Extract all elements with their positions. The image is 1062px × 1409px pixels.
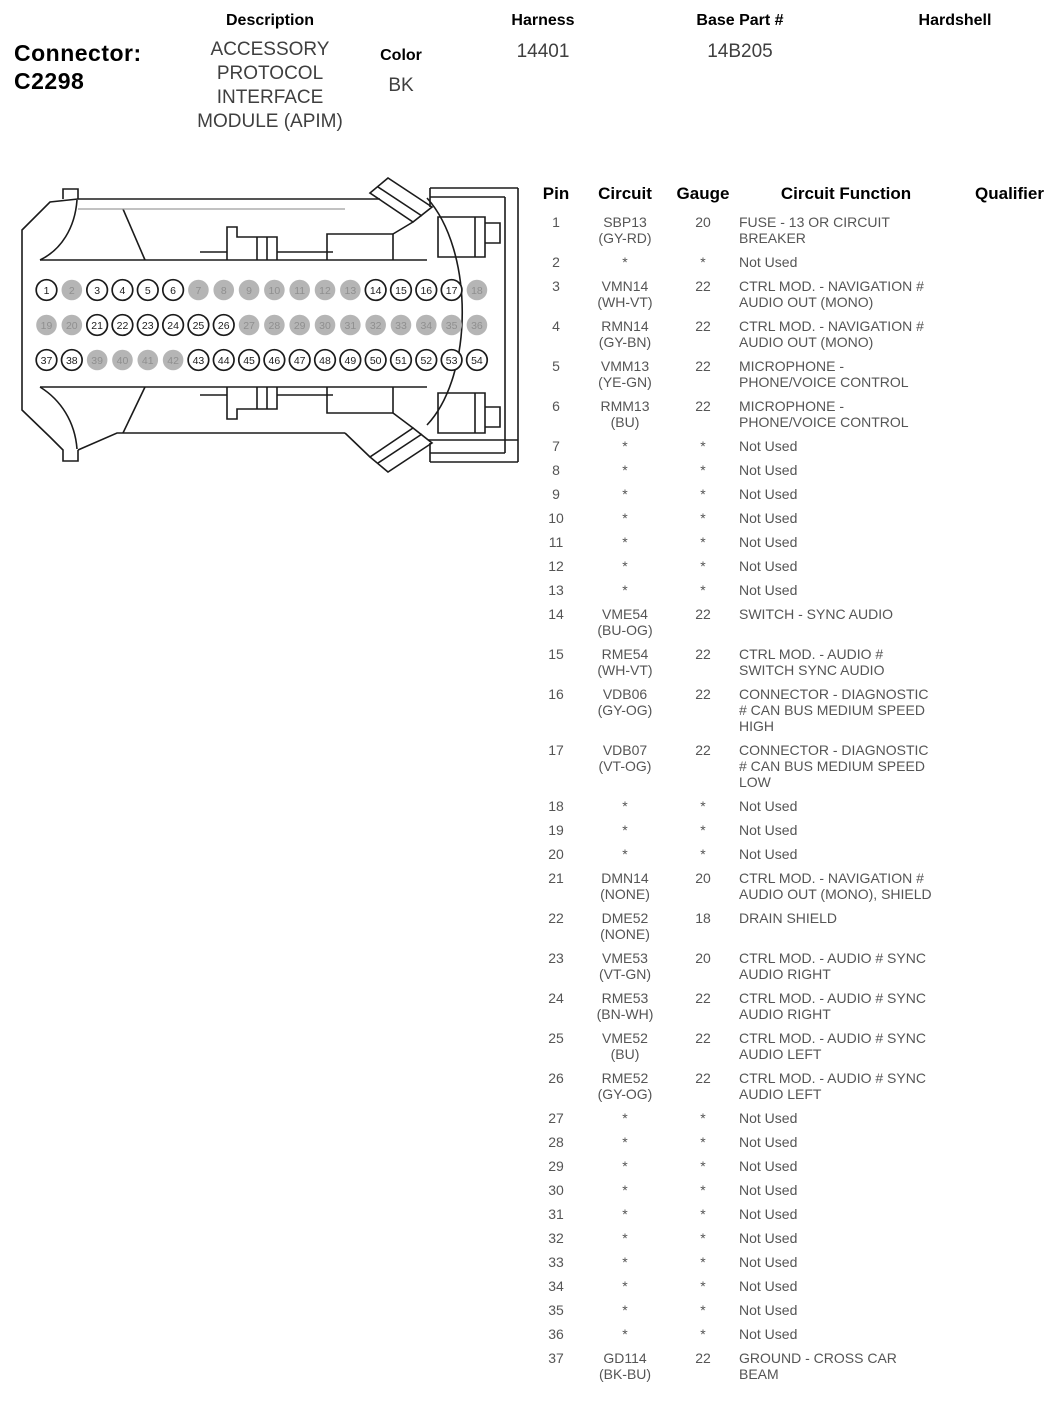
table-row: 4 RMN14 (GY-BN) 22 CTRL MOD. - NAVIGATIO… — [533, 318, 1062, 350]
connector-pin-number-10: 10 — [269, 285, 281, 297]
cell-pin: 2 — [533, 254, 579, 270]
table-row: 17 VDB07 (VT-OG) 22 CONNECTOR - DIAGNOST… — [533, 742, 1062, 790]
circuit-code: * — [579, 822, 671, 838]
cell-circuit-function: DRAIN SHIELD — [735, 910, 957, 942]
circuit-code: * — [579, 1158, 671, 1174]
connector-pin-number-8: 8 — [221, 285, 227, 297]
cell-circuit: * — [579, 254, 671, 270]
cell-circuit: * — [579, 1206, 671, 1222]
connector-pin-number-48: 48 — [319, 355, 331, 367]
cell-circuit-function: Not Used — [735, 438, 957, 454]
cell-circuit: * — [579, 462, 671, 478]
connector-pin-number-29: 29 — [294, 320, 306, 332]
cell-circuit-function: FUSE - 13 OR CIRCUIT BREAKER — [735, 214, 957, 246]
connector-pin-number-24: 24 — [167, 320, 179, 332]
col-header-qualifier: Qualifier — [957, 184, 1062, 204]
cell-gauge: * — [671, 438, 735, 454]
cell-qualifier — [957, 438, 1062, 454]
connector-pin-number-11: 11 — [294, 285, 305, 297]
cell-pin: 36 — [533, 1326, 579, 1342]
cell-gauge: * — [671, 1110, 735, 1126]
cell-gauge: * — [671, 1302, 735, 1318]
circuit-code: VDB06 — [579, 686, 671, 702]
cell-circuit-function: CTRL MOD. - NAVIGATION # AUDIO OUT (MONO… — [735, 870, 957, 902]
connector-pin-number-13: 13 — [344, 285, 356, 297]
connector-pin-number-12: 12 — [319, 285, 331, 297]
cell-gauge: 22 — [671, 606, 735, 638]
connector-pin-number-16: 16 — [420, 285, 432, 297]
cell-qualifier — [957, 1278, 1062, 1294]
cell-pin: 10 — [533, 510, 579, 526]
table-row: 9 * * Not Used — [533, 486, 1062, 502]
cell-qualifier — [957, 558, 1062, 574]
table-row: 29 * * Not Used — [533, 1158, 1062, 1174]
cell-circuit: * — [579, 558, 671, 574]
cell-qualifier — [957, 358, 1062, 390]
connector-pin-number-22: 22 — [117, 320, 129, 332]
cell-qualifier — [957, 1326, 1062, 1342]
cell-qualifier — [957, 1206, 1062, 1222]
cell-pin: 9 — [533, 486, 579, 502]
cell-gauge: 22 — [671, 742, 735, 790]
cell-circuit-function: Not Used — [735, 1182, 957, 1198]
circuit-wire-color: (BU-OG) — [579, 622, 671, 638]
connector-pin-number-54: 54 — [471, 355, 483, 367]
table-row: 18 * * Not Used — [533, 798, 1062, 814]
cell-qualifier — [957, 398, 1062, 430]
cell-pin: 30 — [533, 1182, 579, 1198]
connector-label: Connector: — [14, 40, 142, 67]
table-row: 32 * * Not Used — [533, 1230, 1062, 1246]
cell-circuit-function: Not Used — [735, 254, 957, 270]
table-row: 5 VMM13 (YE-GN) 22 MICROPHONE - PHONE/VO… — [533, 358, 1062, 390]
description-value: ACCESSORY PROTOCOL INTERFACE MODULE (API… — [178, 38, 362, 134]
cell-circuit-function: CTRL MOD. - AUDIO # SYNC AUDIO RIGHT — [735, 990, 957, 1022]
cell-qualifier — [957, 1134, 1062, 1150]
cell-gauge: 22 — [671, 278, 735, 310]
circuit-code: * — [579, 1230, 671, 1246]
connector-pin-number-30: 30 — [319, 320, 331, 332]
table-row: 7 * * Not Used — [533, 438, 1062, 454]
cell-pin: 19 — [533, 822, 579, 838]
connector-pin-number-43: 43 — [193, 355, 205, 367]
circuit-code: * — [579, 846, 671, 862]
circuit-wire-color: (GY-RD) — [579, 230, 671, 246]
circuit-code: * — [579, 486, 671, 502]
table-row: 12 * * Not Used — [533, 558, 1062, 574]
cell-qualifier — [957, 1070, 1062, 1102]
cell-qualifier — [957, 846, 1062, 862]
base-part-column-header: Base Part # — [672, 12, 808, 30]
cell-circuit: VME52 (BU) — [579, 1030, 671, 1062]
connector-pin-number-4: 4 — [120, 285, 126, 297]
connector-pin-number-14: 14 — [370, 285, 382, 297]
cell-gauge: 22 — [671, 646, 735, 678]
connector-pin-number-27: 27 — [243, 320, 255, 332]
cell-gauge: * — [671, 1230, 735, 1246]
circuit-wire-color: (BN-WH) — [579, 1006, 671, 1022]
cell-qualifier — [957, 1302, 1062, 1318]
cell-circuit: * — [579, 510, 671, 526]
connector-pin-number-50: 50 — [370, 355, 382, 367]
cell-circuit-function: CONNECTOR - DIAGNOSTIC # CAN BUS MEDIUM … — [735, 686, 957, 734]
cell-qualifier — [957, 1350, 1062, 1382]
cell-qualifier — [957, 910, 1062, 942]
circuit-wire-color: (YE-GN) — [579, 374, 671, 390]
table-row: 15 RME54 (WH-VT) 22 CTRL MOD. - AUDIO # … — [533, 646, 1062, 678]
table-row: 26 RME52 (GY-OG) 22 CTRL MOD. - AUDIO # … — [533, 1070, 1062, 1102]
circuit-code: * — [579, 1254, 671, 1270]
cell-circuit-function: Not Used — [735, 798, 957, 814]
circuit-wire-color: (BU) — [579, 414, 671, 430]
cell-circuit-function: Not Used — [735, 822, 957, 838]
circuit-code: * — [579, 1206, 671, 1222]
connector-pin-number-37: 37 — [41, 355, 53, 367]
circuit-code: * — [579, 1134, 671, 1150]
cell-gauge: 22 — [671, 686, 735, 734]
circuit-code: SBP13 — [579, 214, 671, 230]
table-row: 21 DMN14 (NONE) 20 CTRL MOD. - NAVIGATIO… — [533, 870, 1062, 902]
connector-pin-grid: 1234567891011121314151617181920212223242… — [36, 280, 487, 371]
cell-qualifier — [957, 254, 1062, 270]
base-part-value: 14B205 — [672, 40, 808, 64]
cell-pin: 21 — [533, 870, 579, 902]
connector-pin-number-42: 42 — [167, 355, 179, 367]
cell-gauge: * — [671, 486, 735, 502]
connector-pin-number-46: 46 — [269, 355, 281, 367]
cell-gauge: * — [671, 1134, 735, 1150]
cell-pin: 11 — [533, 534, 579, 550]
cell-pin: 13 — [533, 582, 579, 598]
cell-pin: 8 — [533, 462, 579, 478]
cell-pin: 5 — [533, 358, 579, 390]
circuit-code: * — [579, 1326, 671, 1342]
cell-gauge: * — [671, 1206, 735, 1222]
connector-pin-number-53: 53 — [446, 355, 458, 367]
connector-pin-number-41: 41 — [142, 355, 154, 367]
cell-gauge: * — [671, 846, 735, 862]
connector-id: C2298 — [14, 68, 84, 95]
circuit-code: VME53 — [579, 950, 671, 966]
cell-qualifier — [957, 1110, 1062, 1126]
cell-qualifier — [957, 686, 1062, 734]
connector-pin-number-1: 1 — [44, 285, 50, 297]
cell-qualifier — [957, 278, 1062, 310]
connector-pin-number-31: 31 — [344, 320, 356, 332]
cell-circuit: VME54 (BU-OG) — [579, 606, 671, 638]
cell-circuit-function: Not Used — [735, 1230, 957, 1246]
connector-pin-number-26: 26 — [218, 320, 230, 332]
circuit-code: DME52 — [579, 910, 671, 926]
pinout-table-body: 1 SBP13 (GY-RD) 20 FUSE - 13 OR CIRCUIT … — [533, 214, 1062, 1382]
cell-qualifier — [957, 646, 1062, 678]
circuit-code: VDB07 — [579, 742, 671, 758]
cell-gauge: 22 — [671, 398, 735, 430]
cell-circuit: VMM13 (YE-GN) — [579, 358, 671, 390]
cell-circuit: * — [579, 1302, 671, 1318]
cell-circuit-function: Not Used — [735, 582, 957, 598]
cell-circuit: VDB06 (GY-OG) — [579, 686, 671, 734]
cell-circuit-function: SWITCH - SYNC AUDIO — [735, 606, 957, 638]
cell-gauge: * — [671, 254, 735, 270]
circuit-wire-color: (VT-GN) — [579, 966, 671, 982]
cell-circuit-function: CONNECTOR - DIAGNOSTIC # CAN BUS MEDIUM … — [735, 742, 957, 790]
cell-circuit: * — [579, 1278, 671, 1294]
cell-qualifier — [957, 990, 1062, 1022]
connector-pin-number-36: 36 — [471, 320, 483, 332]
cell-gauge: 20 — [671, 950, 735, 982]
table-row: 34 * * Not Used — [533, 1278, 1062, 1294]
circuit-code: * — [579, 1182, 671, 1198]
cell-circuit: DME52 (NONE) — [579, 910, 671, 942]
circuit-code: * — [579, 582, 671, 598]
cell-circuit: * — [579, 582, 671, 598]
cell-qualifier — [957, 318, 1062, 350]
cell-gauge: * — [671, 1326, 735, 1342]
circuit-code: * — [579, 254, 671, 270]
cell-circuit: RMN14 (GY-BN) — [579, 318, 671, 350]
cell-circuit: RME54 (WH-VT) — [579, 646, 671, 678]
cell-circuit-function: CTRL MOD. - NAVIGATION # AUDIO OUT (MONO… — [735, 278, 957, 310]
cell-circuit: * — [579, 1326, 671, 1342]
circuit-code: * — [579, 438, 671, 454]
cell-gauge: 22 — [671, 318, 735, 350]
circuit-code: * — [579, 1302, 671, 1318]
connector-pin-number-7: 7 — [195, 285, 201, 297]
cell-circuit-function: Not Used — [735, 462, 957, 478]
cell-qualifier — [957, 870, 1062, 902]
circuit-code: RMM13 — [579, 398, 671, 414]
table-row: 31 * * Not Used — [533, 1206, 1062, 1222]
connector-pin-number-35: 35 — [446, 320, 458, 332]
cell-qualifier — [957, 1254, 1062, 1270]
cell-qualifier — [957, 1182, 1062, 1198]
cell-gauge: 20 — [671, 870, 735, 902]
circuit-wire-color: (WH-VT) — [579, 294, 671, 310]
cell-circuit-function: Not Used — [735, 510, 957, 526]
cell-gauge: * — [671, 1158, 735, 1174]
circuit-wire-color: (GY-OG) — [579, 702, 671, 718]
cell-pin: 28 — [533, 1134, 579, 1150]
table-row: 20 * * Not Used — [533, 846, 1062, 862]
harness-column-header: Harness — [493, 12, 593, 30]
cell-circuit: * — [579, 438, 671, 454]
connector-pin-number-38: 38 — [66, 355, 78, 367]
cell-circuit: * — [579, 534, 671, 550]
cell-pin: 24 — [533, 990, 579, 1022]
cell-pin: 15 — [533, 646, 579, 678]
circuit-wire-color: (NONE) — [579, 886, 671, 902]
table-row: 11 * * Not Used — [533, 534, 1062, 550]
circuit-code: RME53 — [579, 990, 671, 1006]
table-row: 30 * * Not Used — [533, 1182, 1062, 1198]
cell-circuit-function: CTRL MOD. - AUDIO # SYNC AUDIO RIGHT — [735, 950, 957, 982]
cell-circuit: * — [579, 822, 671, 838]
cell-pin: 22 — [533, 910, 579, 942]
table-row: 16 VDB06 (GY-OG) 22 CONNECTOR - DIAGNOST… — [533, 686, 1062, 734]
cell-pin: 1 — [533, 214, 579, 246]
circuit-code: RME54 — [579, 646, 671, 662]
cell-circuit: RME53 (BN-WH) — [579, 990, 671, 1022]
connector-pin-number-19: 19 — [41, 320, 53, 332]
cell-pin: 37 — [533, 1350, 579, 1382]
connector-pin-number-15: 15 — [395, 285, 407, 297]
connector-pin-number-2: 2 — [69, 285, 75, 297]
cell-circuit: * — [579, 1182, 671, 1198]
cell-circuit-function: Not Used — [735, 1254, 957, 1270]
cell-gauge: 22 — [671, 1030, 735, 1062]
cell-circuit: * — [579, 486, 671, 502]
cell-pin: 3 — [533, 278, 579, 310]
cell-qualifier — [957, 742, 1062, 790]
cell-qualifier — [957, 1030, 1062, 1062]
cell-qualifier — [957, 510, 1062, 526]
cell-pin: 31 — [533, 1206, 579, 1222]
cell-pin: 35 — [533, 1302, 579, 1318]
table-row: 27 * * Not Used — [533, 1110, 1062, 1126]
cell-gauge: * — [671, 510, 735, 526]
cell-gauge: 22 — [671, 1350, 735, 1382]
cell-pin: 25 — [533, 1030, 579, 1062]
circuit-wire-color: (BK-BU) — [579, 1366, 671, 1382]
cell-circuit: VDB07 (VT-OG) — [579, 742, 671, 790]
cell-circuit-function: Not Used — [735, 1278, 957, 1294]
cell-qualifier — [957, 214, 1062, 246]
description-column-header: Description — [195, 12, 345, 30]
cell-circuit-function: Not Used — [735, 1110, 957, 1126]
cell-circuit-function: GROUND - CROSS CAR BEAM — [735, 1350, 957, 1382]
table-row: 22 DME52 (NONE) 18 DRAIN SHIELD — [533, 910, 1062, 942]
cell-circuit: VME53 (VT-GN) — [579, 950, 671, 982]
harness-value: 14401 — [493, 40, 593, 64]
cell-gauge: 20 — [671, 214, 735, 246]
cell-circuit: * — [579, 1158, 671, 1174]
pinout-table: Pin Circuit Gauge Circuit Function Quali… — [533, 184, 1062, 1390]
cell-pin: 4 — [533, 318, 579, 350]
cell-circuit-function: Not Used — [735, 846, 957, 862]
cell-circuit-function: Not Used — [735, 1134, 957, 1150]
cell-circuit-function: Not Used — [735, 1302, 957, 1318]
circuit-wire-color: (NONE) — [579, 926, 671, 942]
cell-circuit: * — [579, 1134, 671, 1150]
cell-qualifier — [957, 462, 1062, 478]
cell-gauge: 22 — [671, 1070, 735, 1102]
cell-pin: 12 — [533, 558, 579, 574]
cell-circuit-function: Not Used — [735, 558, 957, 574]
table-row: 10 * * Not Used — [533, 510, 1062, 526]
connector-pin-number-32: 32 — [370, 320, 382, 332]
cell-pin: 17 — [533, 742, 579, 790]
cell-pin: 29 — [533, 1158, 579, 1174]
color-column-header: Color — [368, 47, 434, 65]
cell-circuit-function: CTRL MOD. - AUDIO # SYNC AUDIO LEFT — [735, 1070, 957, 1102]
table-row: 37 GD114 (BK-BU) 22 GROUND - CROSS CAR B… — [533, 1350, 1062, 1382]
cell-circuit-function: Not Used — [735, 1206, 957, 1222]
cell-circuit: SBP13 (GY-RD) — [579, 214, 671, 246]
connector-pin-number-20: 20 — [66, 320, 78, 332]
connector-pin-number-52: 52 — [420, 355, 432, 367]
cell-gauge: * — [671, 534, 735, 550]
col-header-circuit: Circuit — [579, 184, 671, 204]
cell-pin: 32 — [533, 1230, 579, 1246]
connector-pin-number-49: 49 — [344, 355, 356, 367]
connector-pin-number-45: 45 — [243, 355, 255, 367]
cell-circuit: * — [579, 1254, 671, 1270]
table-row: 33 * * Not Used — [533, 1254, 1062, 1270]
table-row: 19 * * Not Used — [533, 822, 1062, 838]
cell-gauge: * — [671, 558, 735, 574]
circuit-wire-color: (BU) — [579, 1046, 671, 1062]
circuit-code: DMN14 — [579, 870, 671, 886]
cell-circuit: * — [579, 1110, 671, 1126]
cell-pin: 23 — [533, 950, 579, 982]
table-row: 8 * * Not Used — [533, 462, 1062, 478]
table-row: 25 VME52 (BU) 22 CTRL MOD. - AUDIO # SYN… — [533, 1030, 1062, 1062]
table-row: 14 VME54 (BU-OG) 22 SWITCH - SYNC AUDIO — [533, 606, 1062, 638]
cell-pin: 34 — [533, 1278, 579, 1294]
cell-circuit-function: CTRL MOD. - AUDIO # SYNC AUDIO LEFT — [735, 1030, 957, 1062]
table-row: 13 * * Not Used — [533, 582, 1062, 598]
cell-pin: 14 — [533, 606, 579, 638]
col-header-circuit-function: Circuit Function — [735, 184, 957, 204]
table-row: 24 RME53 (BN-WH) 22 CTRL MOD. - AUDIO # … — [533, 990, 1062, 1022]
table-row: 36 * * Not Used — [533, 1326, 1062, 1342]
color-value: BK — [368, 74, 434, 98]
connector-pin-number-51: 51 — [395, 355, 407, 367]
cell-pin: 16 — [533, 686, 579, 734]
hardshell-column-header: Hardshell — [895, 12, 1015, 30]
col-header-pin: Pin — [533, 184, 579, 204]
connector-pin-number-23: 23 — [142, 320, 154, 332]
cell-qualifier — [957, 606, 1062, 638]
cell-circuit-function: MICROPHONE - PHONE/VOICE CONTROL — [735, 358, 957, 390]
col-header-gauge: Gauge — [671, 184, 735, 204]
circuit-wire-color: (GY-OG) — [579, 1086, 671, 1102]
circuit-code: RME52 — [579, 1070, 671, 1086]
table-row: 1 SBP13 (GY-RD) 20 FUSE - 13 OR CIRCUIT … — [533, 214, 1062, 246]
cell-gauge: * — [671, 1182, 735, 1198]
cell-pin: 33 — [533, 1254, 579, 1270]
circuit-code: * — [579, 462, 671, 478]
cell-circuit: GD114 (BK-BU) — [579, 1350, 671, 1382]
cell-circuit-function: MICROPHONE - PHONE/VOICE CONTROL — [735, 398, 957, 430]
cell-circuit-function: Not Used — [735, 1158, 957, 1174]
connector-pin-number-34: 34 — [420, 320, 432, 332]
cell-gauge: 18 — [671, 910, 735, 942]
table-row: 2 * * Not Used — [533, 254, 1062, 270]
circuit-code: * — [579, 534, 671, 550]
cell-gauge: * — [671, 822, 735, 838]
cell-pin: 7 — [533, 438, 579, 454]
cell-qualifier — [957, 1158, 1062, 1174]
connector-pin-number-25: 25 — [193, 320, 205, 332]
cell-pin: 20 — [533, 846, 579, 862]
cell-gauge: * — [671, 462, 735, 478]
cell-circuit: * — [579, 846, 671, 862]
pinout-table-header: Pin Circuit Gauge Circuit Function Quali… — [533, 184, 1062, 204]
circuit-code: VME52 — [579, 1030, 671, 1046]
cell-circuit-function: Not Used — [735, 486, 957, 502]
cell-circuit: DMN14 (NONE) — [579, 870, 671, 902]
table-row: 6 RMM13 (BU) 22 MICROPHONE - PHONE/VOICE… — [533, 398, 1062, 430]
cell-circuit: * — [579, 1230, 671, 1246]
connector-pin-number-9: 9 — [246, 285, 252, 297]
cell-gauge: * — [671, 582, 735, 598]
cell-qualifier — [957, 534, 1062, 550]
circuit-code: RMN14 — [579, 318, 671, 334]
connector-pinout-page: Connector: C2298 Description ACCESSORY P… — [0, 0, 1062, 1409]
connector-pin-number-3: 3 — [94, 285, 100, 297]
